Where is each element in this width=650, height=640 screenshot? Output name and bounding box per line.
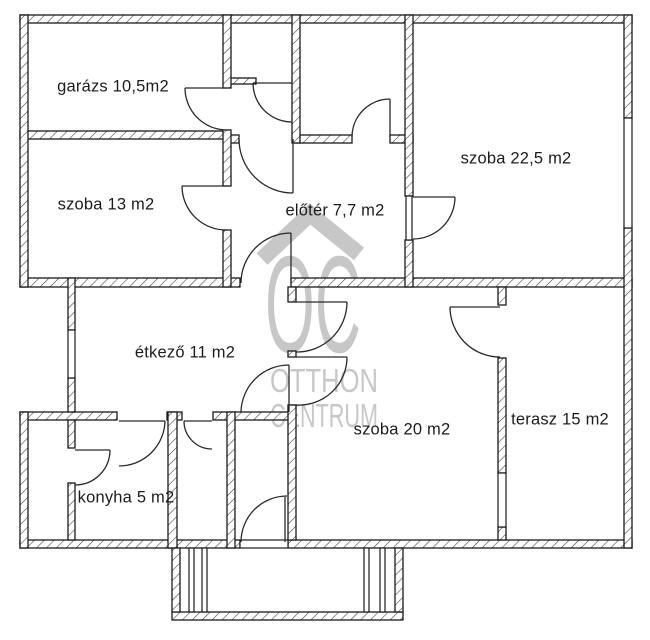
room-label-etkezo: étkező 11 m2	[135, 344, 235, 363]
room-label-garazs: garázs 10,5m2	[57, 78, 169, 97]
door-eloter-top	[239, 139, 293, 193]
room-label-terasz: terasz 15 m2	[511, 411, 609, 430]
room-label-szoba20: szoba 20 m2	[354, 421, 451, 440]
door-szoba225	[413, 197, 455, 239]
door-entrance	[241, 496, 287, 542]
window-terasz-wall	[498, 473, 506, 527]
window-etkezo	[68, 330, 75, 378]
porch-rail-right-2	[380, 548, 385, 612]
porch-rail-left-1	[189, 548, 194, 612]
floor-plan: OC OTTHON CENTRUM	[0, 0, 650, 640]
porch-rail-left-2	[202, 548, 207, 612]
door-szoba13	[182, 186, 227, 230]
room-label-szoba13: szoba 13 m2	[58, 196, 155, 215]
door-garazs	[185, 88, 227, 130]
room-label-szoba225: szoba 22,5 m2	[461, 150, 572, 169]
window-right-wall	[624, 118, 632, 228]
room-label-konyha: konyha 5 m2	[78, 489, 175, 508]
door-kamra-konyha	[75, 450, 110, 485]
door-closet	[253, 83, 292, 122]
watermark-line1: OTTHON	[270, 362, 378, 399]
porch-rail-right-1	[364, 548, 369, 612]
room-label-eloter: előtér 7,7 m2	[286, 202, 385, 221]
door-threshold-szoba225	[406, 196, 412, 240]
door-small-room	[184, 421, 212, 449]
door-terasz	[450, 307, 500, 357]
door-top-middle-room	[352, 99, 390, 137]
door-konyha	[119, 421, 165, 466]
entrance-threshold	[240, 540, 288, 548]
